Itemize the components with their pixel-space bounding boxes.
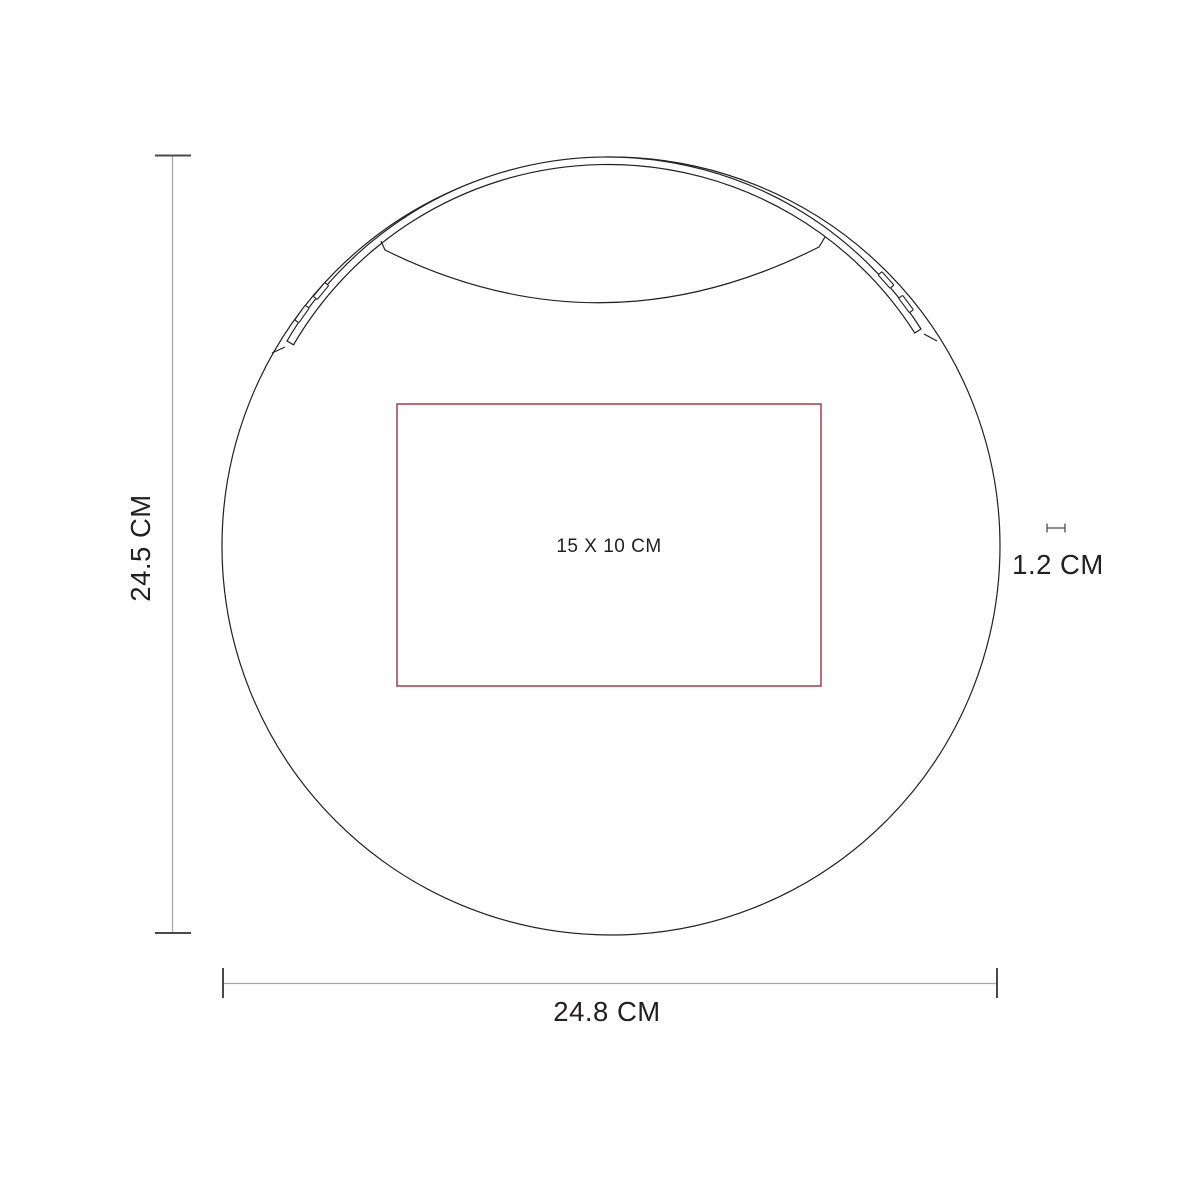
- seam-jog-right: [924, 334, 937, 341]
- depth-dimension-label: 1.2 CM: [1012, 549, 1104, 580]
- diagram-canvas: 24.5 CM 24.8 CM 1.2 CM 15 X 10 CM: [0, 0, 1200, 1200]
- depth-marker: [1047, 524, 1065, 533]
- dimension-ticks: [155, 156, 997, 999]
- case-opening-curve: [381, 237, 825, 303]
- print-area-label: 15 X 10 CM: [556, 536, 661, 557]
- handle-strap-band: [287, 157, 921, 345]
- labels: 24.5 CM 24.8 CM 1.2 CM 15 X 10 CM: [125, 494, 1104, 1027]
- height-dimension-label: 24.5 CM: [125, 494, 156, 601]
- diagram-stage: 24.5 CM 24.8 CM 1.2 CM 15 X 10 CM: [0, 0, 1200, 1200]
- width-dimension-label: 24.8 CM: [553, 996, 660, 1027]
- seam-jog-left: [272, 347, 285, 353]
